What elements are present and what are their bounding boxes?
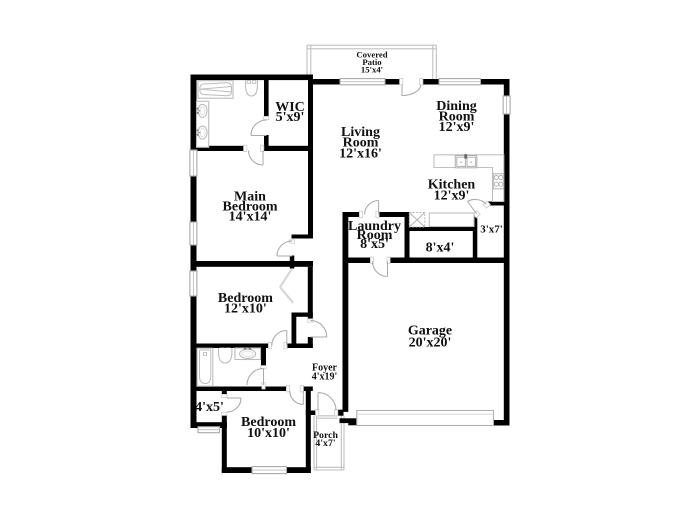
svg-text:8'x5': 8'x5' <box>360 237 389 252</box>
svg-text:10'x10': 10'x10' <box>247 426 290 441</box>
svg-text:20'x20': 20'x20' <box>409 335 452 350</box>
svg-text:12'x16': 12'x16' <box>339 146 382 161</box>
svg-text:3'x7': 3'x7' <box>480 224 503 236</box>
svg-text:4'x19': 4'x19' <box>312 371 338 382</box>
svg-text:14'x14': 14'x14' <box>229 210 272 225</box>
svg-text:12'x10': 12'x10' <box>224 302 267 317</box>
svg-text:5'x9': 5'x9' <box>276 110 305 125</box>
svg-text:4'x5': 4'x5' <box>195 400 224 415</box>
svg-text:4'x7': 4'x7' <box>315 438 335 449</box>
svg-text:12'x9': 12'x9' <box>439 120 475 135</box>
svg-text:12'x9': 12'x9' <box>434 188 470 203</box>
svg-text:8'x4': 8'x4' <box>426 240 455 255</box>
svg-text:15'x4': 15'x4' <box>361 64 383 74</box>
